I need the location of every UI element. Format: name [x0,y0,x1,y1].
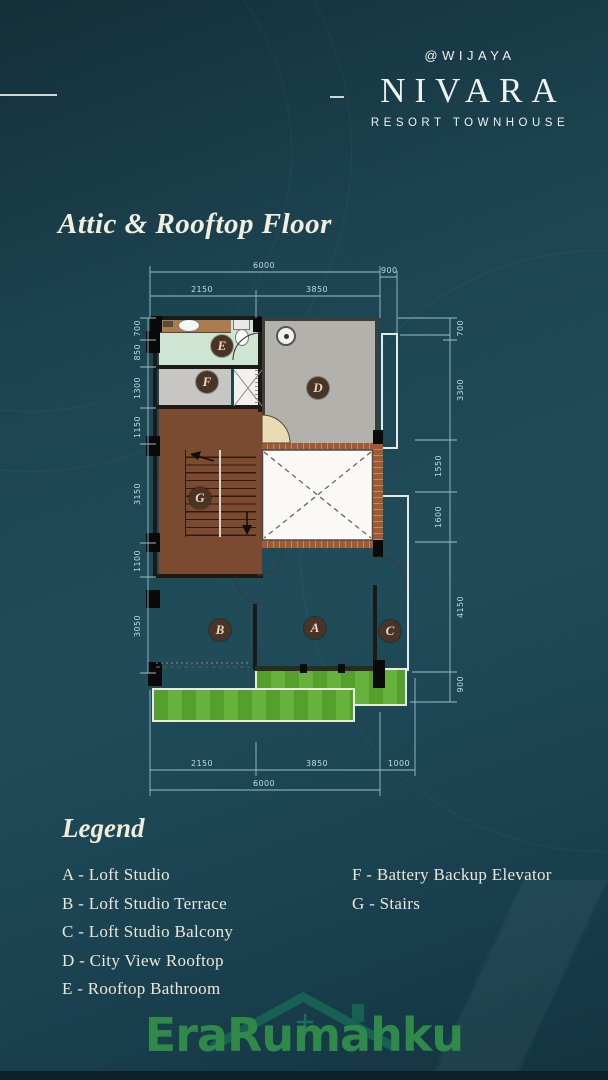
room-marker-c: C [379,620,401,642]
toilet-bowl [235,329,249,346]
rooftop-table-center [284,334,289,339]
room-marker-d-label: D [313,380,322,396]
wall-pier [146,436,160,456]
legend-item-a: A - Loft Studio [62,865,233,885]
room-f-elevator [159,369,231,406]
room-marker-f-label: F [203,374,212,390]
wall-post [300,664,307,673]
room-marker-c-label: C [386,623,395,639]
room-marker-a: A [304,617,326,639]
wall-pier [148,662,162,686]
room-marker-a-label: A [311,620,320,636]
wall-post [338,664,345,673]
wall-pier [146,533,160,552]
dim-left-5: 3150 [133,483,142,505]
stairs-divider [219,450,221,537]
room-marker-e: E [211,335,233,357]
poster-page: @WIJAYA NIVARA RESORT TOWNHOUSE Attic & … [0,0,608,1080]
room-marker-g: G [189,487,211,509]
watermark-text: EraRumahku [0,1008,608,1062]
dim-left-1: 700 [133,320,142,336]
dim-bottom-overall: 6000 [253,779,275,788]
legend-item-g: G - Stairs [352,894,552,914]
dim-right-4: 1600 [434,506,443,528]
legend-item-c: C - Loft Studio Balcony [62,922,233,942]
dim-right-3: 1550 [434,455,443,477]
dim-top-1: 2150 [191,285,213,294]
wall [255,666,385,671]
wall [253,604,257,670]
legend-heading: Legend [62,813,144,844]
room-b-terrace [152,578,253,686]
dim-left-3: 1300 [133,377,142,399]
dim-right-1: 700 [456,320,465,336]
room-marker-e-label: E [218,338,227,354]
brick-wall [262,540,377,548]
room-marker-b: B [209,619,231,641]
wall-pier [373,430,383,444]
dim-left-2: 850 [133,344,142,360]
room-marker-d: D [307,377,329,399]
wall-pier [373,660,385,688]
dim-top-overall: 6000 [253,261,275,270]
wall-pier [253,317,262,332]
dim-left-4: 1150 [133,416,142,438]
legend-item-b: B - Loft Studio Terrace [62,894,233,914]
dim-left-7: 3050 [133,615,142,637]
brick-wall [262,443,377,450]
legend-right-column: F - Battery Backup Elevator G - Stairs [352,865,552,922]
wall [153,316,262,320]
wall [157,365,262,369]
grass-left [152,688,355,722]
dim-left-6: 1100 [133,550,142,572]
dim-right-5: 4150 [456,596,465,618]
wall [157,405,262,409]
dim-bottom-1: 2150 [191,759,213,768]
bath-sink [178,319,200,332]
legend-item-d: D - City View Rooftop [62,951,233,971]
dim-bottom-3: 1000 [388,759,410,768]
dim-bottom-2: 3850 [306,759,328,768]
watermark-logo: EraRumahku [0,985,608,1075]
wall [373,585,377,669]
wall-pier [146,331,160,353]
wall-pier [150,316,162,332]
wall-pier [146,590,160,608]
wall-pier [373,540,383,557]
room-a-loft-studio [257,548,373,668]
counter-item [163,321,173,327]
dim-right-6: 900 [456,676,465,692]
room-marker-g-label: G [195,490,204,506]
dim-top-2: 3850 [306,285,328,294]
dim-right-2: 3300 [456,379,465,401]
wall [153,574,263,578]
legend-item-f: F - Battery Backup Elevator [352,865,552,885]
room-marker-b-label: B [216,622,225,638]
dim-top-3: 900 [381,266,397,275]
parapet-ledge [381,333,398,449]
room-marker-f: F [196,371,218,393]
